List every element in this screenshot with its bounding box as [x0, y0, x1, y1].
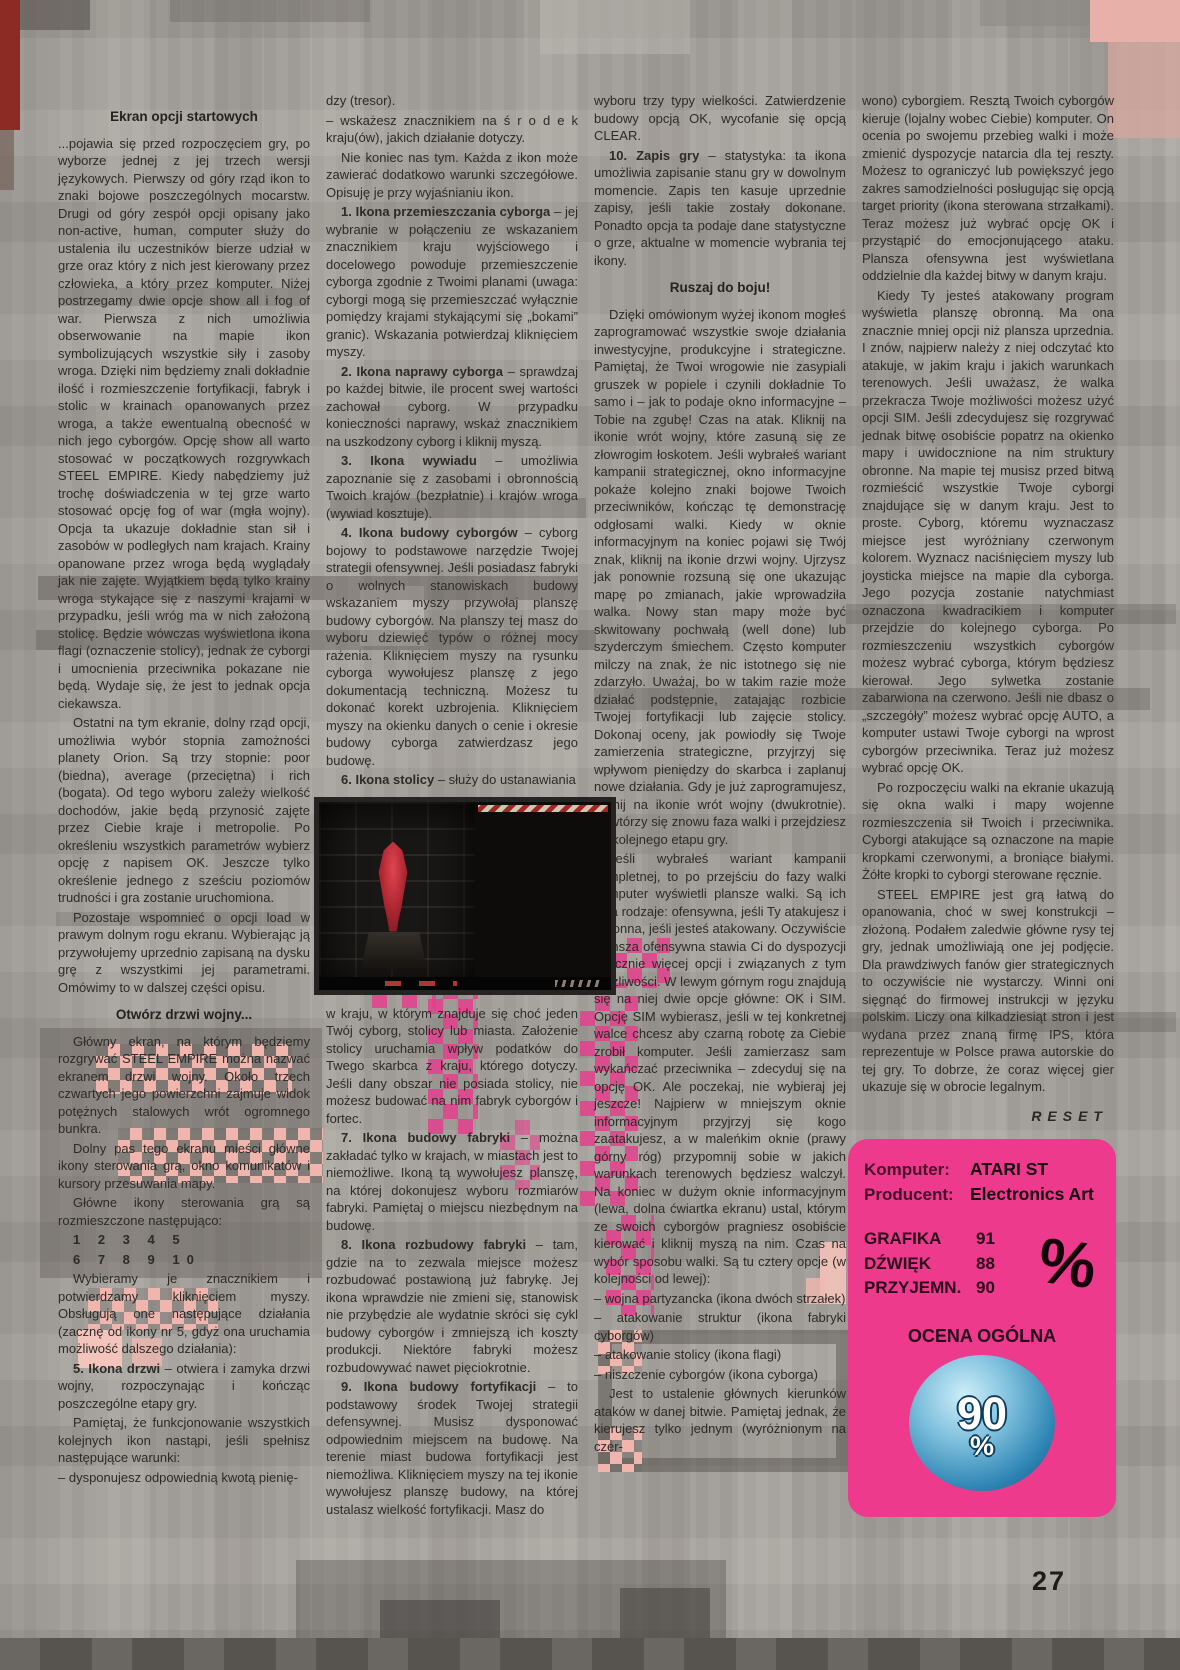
- rating-row: PRZYJEMN. 90: [864, 1279, 1037, 1297]
- bullet-item: – atakowanie stolicy (ikona flagi): [594, 1346, 846, 1364]
- item-text: – służy do ustanawiania: [434, 772, 576, 787]
- paragraph: Pamiętaj, że funkcjonowanie wszystkich k…: [58, 1414, 310, 1467]
- bullet-item: – niszczenie cyborgów (ikona cyborga): [594, 1366, 846, 1384]
- overall-score-value: 90: [957, 1391, 1007, 1436]
- rating-value: 90: [976, 1279, 995, 1297]
- paragraph: 6. Ikona stolicy – służy do ustanawiania: [326, 771, 578, 789]
- overall-score-unit: %: [970, 1438, 994, 1456]
- bottom-bar: [0, 1638, 1180, 1670]
- article-column-3: wyboru trzy typy wielkości. Zatwierdzeni…: [594, 92, 846, 1457]
- decor-block: [380, 1600, 500, 1640]
- icon-numbers-row: 6 7 8 9 10: [58, 1251, 310, 1269]
- page-number: 27: [1032, 1566, 1066, 1597]
- item-lead: 6. Ikona stolicy: [341, 772, 434, 787]
- paragraph: wyboru trzy typy wielkości. Zatwierdzeni…: [594, 92, 846, 145]
- item-text: – tam, gdzie na to zezwala miejsce możes…: [326, 1237, 578, 1375]
- paragraph: wono) cyborgiem. Resztą Twoich cyborgów …: [862, 92, 1114, 285]
- item-text: – cyborg bojowy to podstawowe narzędzie …: [326, 525, 578, 768]
- figure-pedestal: [361, 932, 427, 970]
- item-lead: 8. Ikona rozbudowy fabryki: [341, 1237, 526, 1252]
- chevron-marks: [555, 980, 601, 987]
- article-body: Ekran opcji startowych ...pojawia się pr…: [0, 0, 1180, 1520]
- item-lead: 3. Ikona wywiadu: [341, 453, 477, 468]
- paragraph: – dysponujesz odpowiednią kwotą pienię-: [58, 1469, 310, 1487]
- paragraph: 9. Ikona budowy fortyfikacji – to podsta…: [326, 1378, 578, 1518]
- hazard-stripes: [478, 805, 608, 812]
- paragraph: Ostatni na tym ekranie, dolny rząd opcji…: [58, 714, 310, 907]
- computer-value: ATARI ST: [970, 1161, 1048, 1179]
- producer-row: Producent: Electronics Art: [864, 1186, 1100, 1204]
- paragraph: – wskażesz znacznikiem na ś r o d e k kr…: [326, 112, 578, 147]
- rating-row: GRAFIKA 91: [864, 1230, 1037, 1248]
- paragraph: Dzięki omówionym wyżej ikonom mogłeś zap…: [594, 306, 846, 849]
- paragraph: Nie koniec nas tym. Każda z ikon może za…: [326, 149, 578, 202]
- icon-numbers-row: 1 2 3 4 5: [58, 1231, 310, 1249]
- overall-rating-label: OCENA OGÓLNA: [864, 1328, 1100, 1346]
- item-lead: 5. Ikona drzwi: [73, 1361, 160, 1376]
- paragraph: Po rozpoczęciu walki na ekranie ukazują …: [862, 779, 1114, 884]
- percent-glyph: %: [1035, 1228, 1099, 1298]
- item-text: – to podstawowy środek Twojej strategii …: [326, 1379, 578, 1517]
- decor-block: [620, 1588, 710, 1638]
- rating-value: 91: [976, 1230, 995, 1248]
- paragraph: 10. Zapis gry – statystyka: ta ikona umo…: [594, 147, 846, 270]
- article-column-4: wono) cyborgiem. Resztą Twoich cyborgów …: [862, 92, 1114, 1517]
- section-heading: Otwórz drzwi wojny...: [58, 1006, 310, 1024]
- red-dashes: [385, 981, 457, 986]
- section-heading: Ekran opcji startowych: [58, 108, 310, 126]
- item-lead: 10. Zapis gry: [609, 148, 699, 163]
- paragraph: STEEL EMPIRE jest grą łatwą do opanowani…: [862, 886, 1114, 1096]
- paragraph: Wybieramy je znacznikiem i potwierdzamy …: [58, 1270, 310, 1358]
- paragraph: 8. Ikona rozbudowy fabryki – tam, gdzie …: [326, 1236, 578, 1376]
- rating-label: PRZYJEMN.: [864, 1279, 976, 1297]
- overall-score-ball: 90 %: [909, 1355, 1055, 1491]
- item-lead: 2. Ikona naprawy cyborga: [341, 364, 503, 379]
- red-cyborg-figure: [375, 842, 411, 932]
- item-lead: 1. Ikona przemieszczania cyborga: [341, 204, 550, 219]
- screenshot-stats-panel: [475, 802, 611, 990]
- paragraph: Jest to ustalenie głównych kierunków ata…: [594, 1385, 846, 1455]
- bullet-item: – atakowanie struktur (ikona fabryki cyb…: [594, 1309, 846, 1344]
- game-screenshot: [314, 797, 616, 995]
- paragraph: dzy (tresor).: [326, 92, 578, 110]
- screenshot-bunker-wall: [319, 802, 475, 990]
- section-heading: Ruszaj do boju!: [594, 279, 846, 297]
- paragraph: Pozostaje wspomnieć o opcji load w prawy…: [58, 909, 310, 997]
- bullet-item: – wojna partyzancka (ikona dwóch strzałe…: [594, 1290, 846, 1308]
- rating-row: DŹWIĘK 88: [864, 1255, 1037, 1273]
- item-lead: 9. Ikona budowy fortyfikacji: [341, 1379, 536, 1394]
- paragraph: Dolny pas tego ekranu mieści główne ikon…: [58, 1140, 310, 1193]
- item-text: – można zakładać tylko w krajach, w mias…: [326, 1130, 578, 1233]
- paragraph: ...pojawia się przed rozpoczęciem gry, p…: [58, 135, 310, 713]
- item-text: – statystyka: ta ikona umożliwia zapisan…: [594, 148, 846, 268]
- paragraph: 3. Ikona wywiadu – umożliwia zapoznanie …: [326, 452, 578, 522]
- rating-label: GRAFIKA: [864, 1230, 976, 1248]
- paragraph: 1. Ikona przemieszczania cyborga – jej w…: [326, 203, 578, 361]
- magazine-page: Ekran opcji startowych ...pojawia się pr…: [0, 0, 1180, 1670]
- computer-label: Komputer:: [864, 1161, 970, 1179]
- article-column-1: Ekran opcji startowych ...pojawia się pr…: [58, 92, 310, 1488]
- producer-value: Electronics Art: [970, 1186, 1094, 1204]
- rating-label: DŹWIĘK: [864, 1255, 976, 1273]
- paragraph: Jeśli wybrałeś wariant kampanii kompletn…: [594, 850, 846, 1288]
- review-box: Komputer: ATARI ST Producent: Electronic…: [848, 1139, 1116, 1517]
- paragraph: Główny ekran, na którym będziemy rozgryw…: [58, 1033, 310, 1138]
- ratings-block: GRAFIKA 91 DŹWIĘK 88 PRZYJEMN. 90 %: [864, 1223, 1100, 1304]
- item-text: – jej wybranie w połączeniu ze wskazanie…: [326, 204, 578, 359]
- paragraph: 2. Ikona naprawy cyborga – sprawdzaj po …: [326, 363, 578, 451]
- paragraph: Kiedy Ty jesteś atakowany program wyświe…: [862, 287, 1114, 777]
- paragraph: 5. Ikona drzwi – otwiera i zamyka drzwi …: [58, 1360, 310, 1413]
- rating-value: 88: [976, 1255, 995, 1273]
- computer-row: Komputer: ATARI ST: [864, 1161, 1100, 1179]
- author-signature: RESET: [862, 1108, 1108, 1126]
- producer-label: Producent:: [864, 1186, 970, 1204]
- paragraph: w kraju, w którym znajduje się choć jede…: [326, 1005, 578, 1128]
- article-column-2: dzy (tresor). – wskażesz znacznikiem na …: [326, 92, 578, 1520]
- paragraph: 7. Ikona budowy fabryki – można zakładać…: [326, 1129, 578, 1234]
- paragraph: 4. Ikona budowy cyborgów – cyborg bojowy…: [326, 524, 578, 769]
- ratings-rows: GRAFIKA 91 DŹWIĘK 88 PRZYJEMN. 90: [864, 1223, 1037, 1304]
- paragraph: Główne ikony sterowania grą są rozmieszc…: [58, 1194, 310, 1229]
- item-lead: 4. Ikona budowy cyborgów: [341, 525, 518, 540]
- item-lead: 7. Ikona budowy fabryki: [341, 1130, 510, 1145]
